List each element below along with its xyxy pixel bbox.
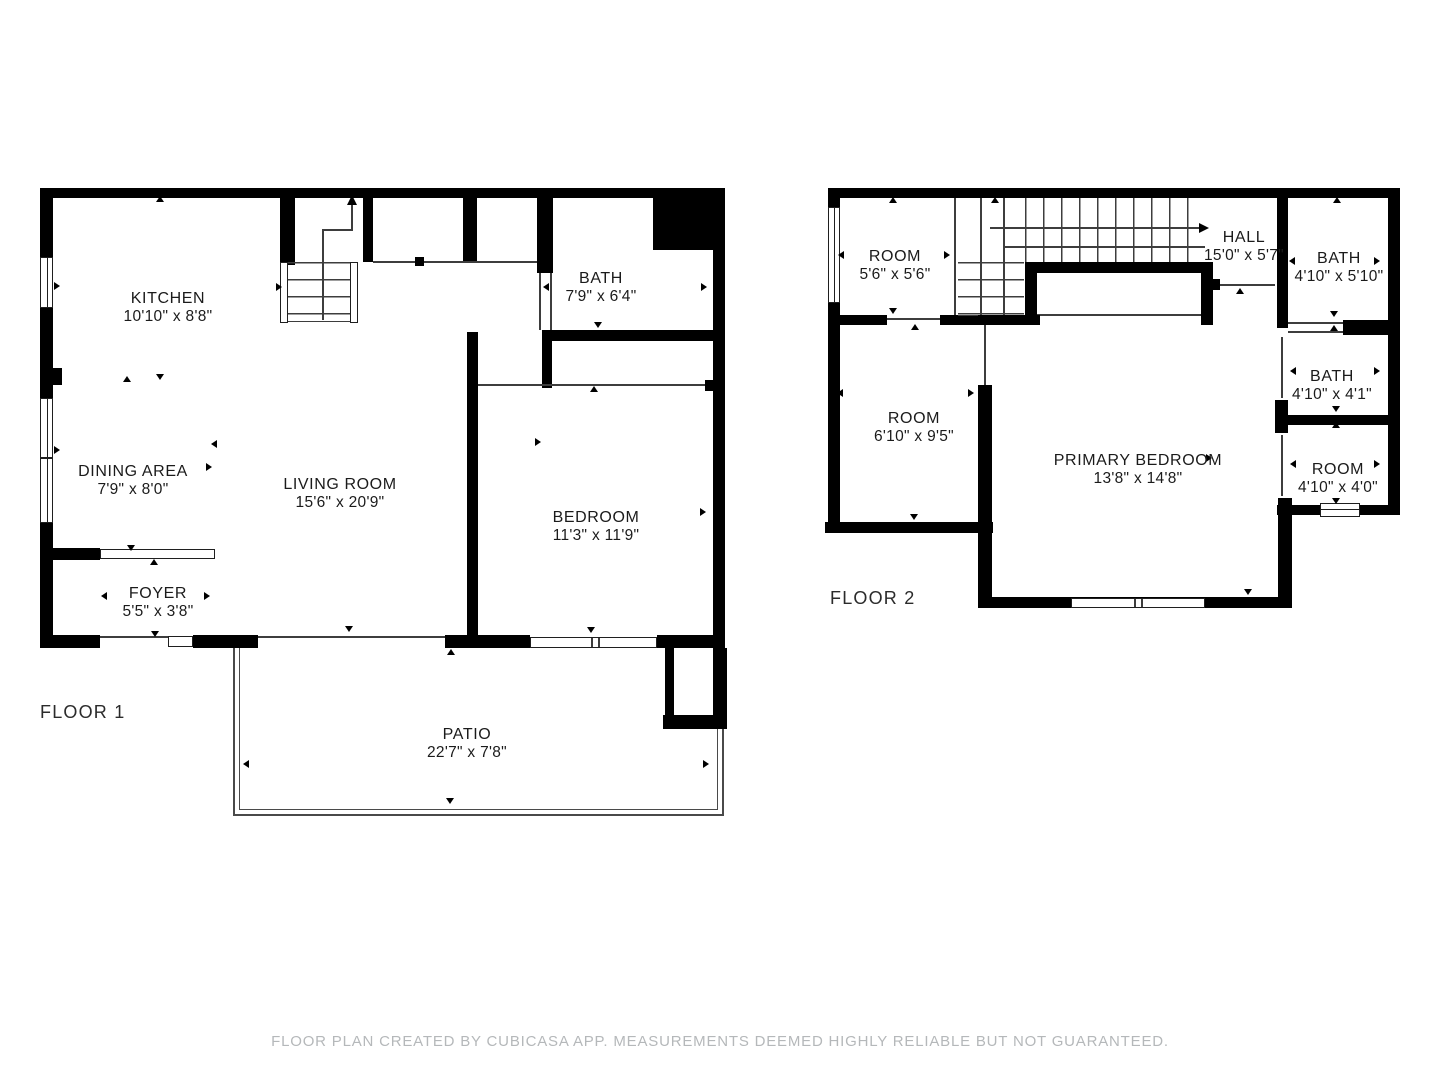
room-dims: 5'5" x 3'8" — [122, 603, 193, 622]
direction-marker — [911, 324, 919, 330]
direction-marker — [150, 559, 158, 565]
direction-marker — [968, 389, 974, 397]
direction-marker — [1333, 197, 1341, 203]
direction-marker — [1332, 406, 1340, 412]
direction-marker — [838, 251, 844, 259]
wall — [537, 188, 553, 273]
room-name: LIVING ROOM — [283, 475, 396, 494]
window — [40, 458, 53, 523]
door-line — [550, 273, 552, 330]
direction-marker — [345, 626, 353, 632]
room-dims: 7'9" x 8'0" — [78, 481, 188, 500]
wall — [1201, 262, 1213, 325]
wall — [665, 648, 674, 715]
direction-marker — [243, 760, 249, 768]
direction-marker — [1236, 288, 1244, 294]
direction-marker — [590, 386, 598, 392]
direction-marker — [991, 197, 999, 203]
wall — [828, 315, 887, 325]
room-dims: 4'10" x 5'10" — [1295, 268, 1384, 287]
room-label-living-room: LIVING ROOM 15'6" x 20'9" — [283, 475, 396, 513]
floor2-label: FLOOR 2 — [830, 588, 915, 609]
wall — [825, 522, 993, 533]
door-line — [1281, 337, 1283, 398]
door-line — [1288, 331, 1343, 333]
opening-line — [887, 318, 940, 320]
wall — [280, 197, 295, 265]
direction-marker — [889, 308, 897, 314]
wall — [1025, 262, 1213, 273]
direction-marker — [535, 438, 541, 446]
room-name: BATH — [565, 269, 636, 288]
direction-marker — [587, 627, 595, 633]
window — [530, 637, 657, 648]
footer-disclaimer: FLOOR PLAN CREATED BY CUBICASA APP. MEAS… — [0, 1033, 1440, 1050]
room-dims: 10'10" x 8'8" — [124, 308, 213, 327]
room-dims: 22'7" x 7'8" — [427, 744, 507, 763]
room-label-bath: BATH 7'9" x 6'4" — [565, 269, 636, 307]
wall — [40, 188, 53, 257]
room-dims: 13'8" x 14'8" — [1054, 470, 1222, 489]
opening-line — [1220, 284, 1275, 286]
window — [1071, 598, 1205, 608]
direction-marker — [156, 374, 164, 380]
window — [1320, 503, 1360, 517]
stair-arrow-shaft — [990, 227, 1203, 229]
direction-marker — [1330, 325, 1338, 331]
wall — [713, 648, 727, 729]
wall — [978, 385, 992, 608]
room-label-room-a: ROOM 5'6" x 5'6" — [859, 247, 930, 285]
wall — [657, 635, 725, 648]
room-label-room-c: ROOM 4'10" x 4'0" — [1298, 460, 1378, 498]
room-dims: 15'0" x 5'7" — [1204, 247, 1284, 266]
direction-marker — [156, 196, 164, 202]
wall — [463, 197, 477, 262]
direction-marker — [837, 389, 843, 397]
stair-treads — [288, 262, 350, 322]
floor1-label: FLOOR 1 — [40, 702, 125, 723]
direction-marker — [700, 508, 706, 516]
direction-marker — [54, 282, 60, 290]
room-name: PATIO — [427, 725, 507, 744]
direction-marker — [101, 592, 107, 600]
direction-marker — [447, 649, 455, 655]
stair-arrow-shaft — [351, 204, 353, 231]
wall — [1388, 188, 1400, 515]
room-name: BEDROOM — [553, 508, 640, 527]
stair-treads — [1025, 198, 1205, 262]
room-dims: 15'6" x 20'9" — [283, 494, 396, 513]
floor-plan-canvas: KITCHEN 10'10" x 8'8" BATH 7'9" x 6'4" D… — [0, 0, 1440, 1080]
room-label-kitchen: KITCHEN 10'10" x 8'8" — [124, 289, 213, 327]
wall — [978, 315, 1040, 325]
direction-marker — [889, 197, 897, 203]
room-dims: 4'10" x 4'0" — [1298, 479, 1378, 498]
wall — [40, 635, 100, 648]
wall — [193, 635, 258, 648]
wall — [467, 332, 478, 638]
direction-marker — [151, 631, 159, 637]
room-name: KITCHEN — [124, 289, 213, 308]
wall — [828, 188, 1400, 198]
stair-treads — [958, 262, 1024, 316]
room-label-bath-upper: BATH 4'10" x 5'10" — [1295, 249, 1384, 287]
partition-line — [954, 198, 956, 315]
stair-rail — [350, 262, 358, 323]
direction-marker — [984, 454, 990, 462]
direction-marker — [276, 283, 282, 291]
room-label-dining-area: DINING AREA 7'9" x 8'0" — [78, 462, 188, 500]
room-dims: 4'10" x 4'1" — [1292, 386, 1372, 405]
direction-marker — [543, 283, 549, 291]
wall — [445, 635, 530, 648]
room-name: BATH — [1292, 367, 1372, 386]
direction-marker — [127, 545, 135, 551]
room-label-room-b: ROOM 6'10" x 9'5" — [874, 409, 954, 447]
wall — [542, 330, 725, 341]
opening-line — [1037, 314, 1201, 316]
direction-marker — [470, 506, 476, 514]
room-label-primary-bedroom: PRIMARY BEDROOM 13'8" x 14'8" — [1054, 451, 1222, 489]
direction-marker — [1332, 498, 1340, 504]
room-name: PRIMARY BEDROOM — [1054, 451, 1222, 470]
window — [40, 257, 53, 308]
wall — [363, 197, 373, 262]
direction-marker — [54, 446, 60, 454]
room-name: ROOM — [859, 247, 930, 266]
room-label-bedroom: BEDROOM 11'3" x 11'9" — [553, 508, 640, 546]
direction-marker — [1290, 460, 1296, 468]
room-dims: 11'3" x 11'9" — [553, 527, 640, 546]
door-line — [984, 325, 986, 385]
door-line — [1281, 435, 1283, 496]
stair-up-arrow-icon — [347, 195, 357, 205]
wall — [713, 188, 725, 648]
room-label-hall: HALL 15'0" x 5'7" — [1204, 228, 1284, 266]
direction-marker — [123, 376, 131, 382]
room-name: ROOM — [1298, 460, 1378, 479]
room-dims: 7'9" x 6'4" — [565, 288, 636, 307]
door-jamb — [705, 380, 713, 391]
door-line — [539, 273, 541, 330]
wall — [53, 368, 62, 385]
stair-line — [1005, 246, 1205, 248]
stair-line — [322, 229, 352, 231]
stair-line — [322, 229, 324, 320]
wall — [40, 548, 100, 560]
room-name: HALL — [1204, 228, 1284, 247]
door-jamb — [1210, 279, 1220, 290]
wall — [542, 341, 552, 388]
room-dims: 6'10" x 9'5" — [874, 428, 954, 447]
direction-marker — [594, 322, 602, 328]
direction-marker — [446, 798, 454, 804]
direction-marker — [1374, 367, 1380, 375]
room-name: FOYER — [122, 584, 193, 603]
wall — [1025, 262, 1037, 322]
room-dims: 5'6" x 5'6" — [859, 266, 930, 285]
wall — [40, 308, 53, 398]
direction-marker — [211, 440, 217, 448]
direction-marker — [1330, 311, 1338, 317]
room-name: DINING AREA — [78, 462, 188, 481]
wall — [40, 523, 53, 647]
door-line — [1288, 322, 1343, 324]
direction-marker — [206, 463, 212, 471]
direction-marker — [944, 251, 950, 259]
stair-rail — [280, 262, 288, 323]
direction-marker — [703, 760, 709, 768]
door — [168, 636, 193, 647]
opening-line — [373, 261, 537, 263]
window — [40, 398, 53, 458]
sliding-door — [100, 549, 215, 559]
opening-line — [258, 636, 445, 638]
room-label-bath-lower: BATH 4'10" x 4'1" — [1292, 367, 1372, 405]
direction-marker — [1244, 589, 1252, 595]
room-name: ROOM — [874, 409, 954, 428]
direction-marker — [1332, 422, 1340, 428]
direction-marker — [701, 283, 707, 291]
room-label-foyer: FOYER 5'5" x 3'8" — [122, 584, 193, 622]
wall — [1343, 320, 1388, 335]
room-label-patio: PATIO 22'7" x 7'8" — [427, 725, 507, 763]
room-name: BATH — [1295, 249, 1384, 268]
door-jamb — [415, 257, 424, 266]
direction-marker — [204, 592, 210, 600]
direction-marker — [910, 514, 918, 520]
